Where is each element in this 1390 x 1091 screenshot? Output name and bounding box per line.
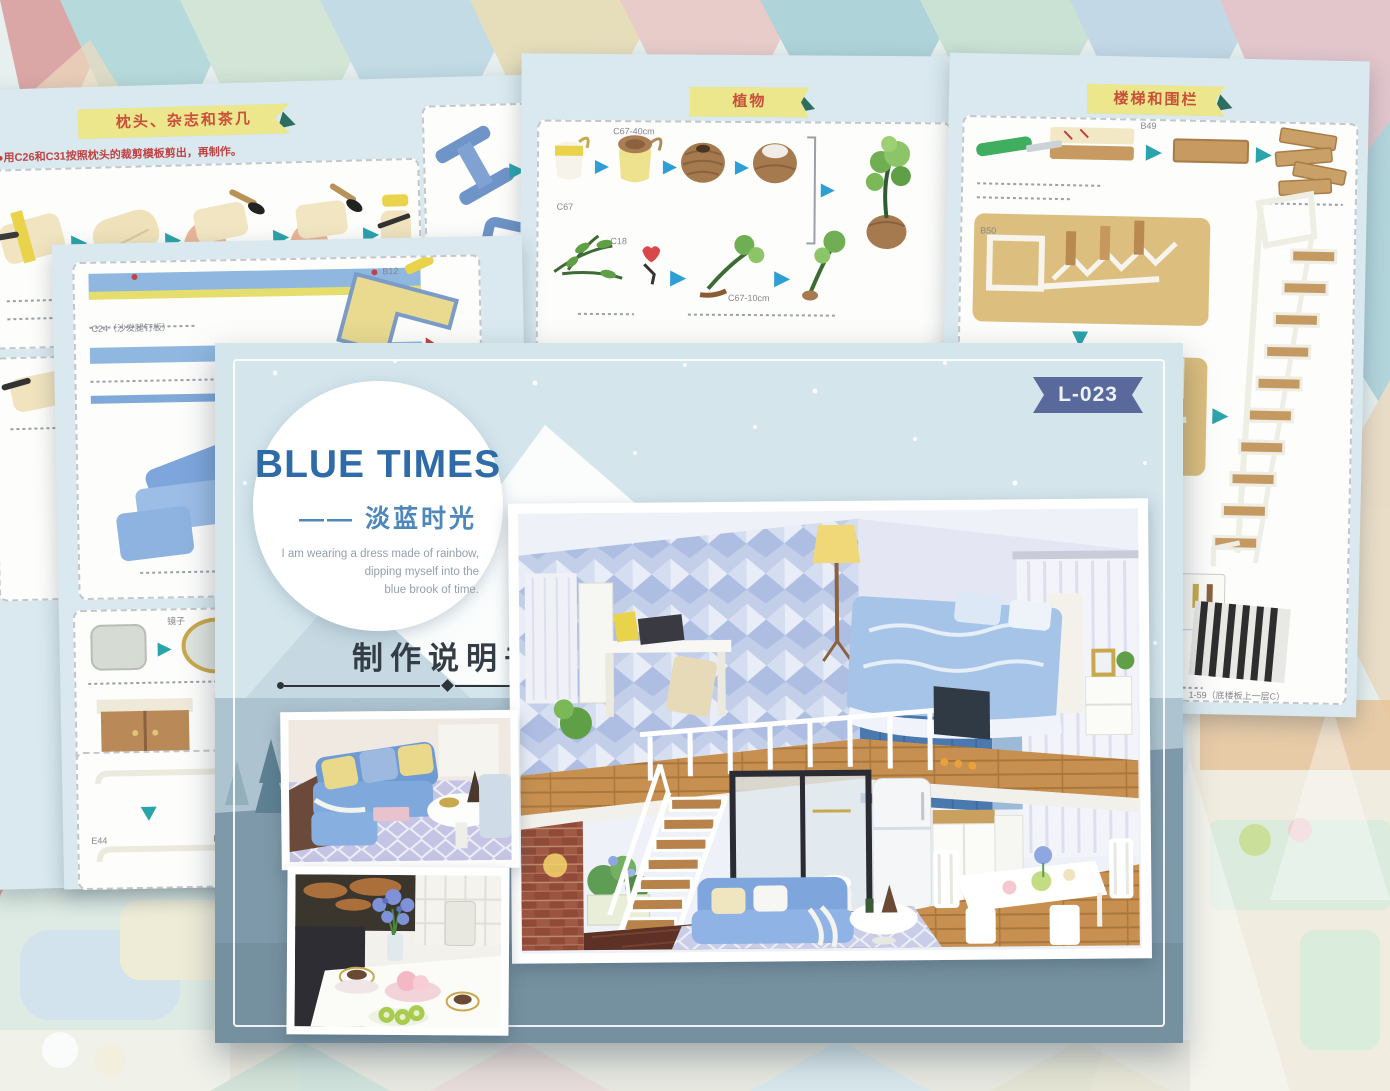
striped-rug: [1189, 601, 1291, 683]
blue-frame-piece: [433, 124, 516, 208]
stair-frame-box-1: [972, 213, 1210, 326]
living-sofa: [691, 877, 854, 948]
arrow-icon: [735, 161, 749, 175]
assembled-staircase: [1213, 192, 1337, 568]
arrow-icon: [1146, 145, 1162, 161]
label-c67-40: C67-40cm: [613, 126, 655, 136]
branch-step-2: [700, 235, 764, 296]
photo-canvas: 枕头、杂志和茶几 ●用C26和C31按照枕头的裁剪模板剪出，再制作。: [0, 0, 1390, 1091]
stairs-banner-label: 楼梯和围栏: [1113, 90, 1198, 109]
arrow-icon: [774, 271, 790, 287]
arrow-icon: [141, 807, 157, 821]
inset-photo-kitchen: [286, 866, 509, 1036]
tagline-line-2: dipping myself into the: [269, 564, 479, 582]
plank-pile: [1274, 128, 1347, 197]
cover-page: L-023 BLUE TIMES —— 淡蓝时光 I am wearing a …: [215, 343, 1183, 1043]
tagline-line-3: blue brook of time.: [269, 582, 479, 600]
arrow-icon: [670, 270, 686, 286]
label-b50: B50: [980, 225, 996, 235]
knife-and-wood: [975, 125, 1134, 160]
brick-wall: [521, 821, 584, 951]
title-circle: BLUE TIMES —— 淡蓝时光 I am wearing a dress …: [253, 381, 503, 631]
dollhouse-art: [518, 508, 1142, 953]
arrow-icon: [1212, 408, 1228, 424]
label-c67-10: C67-10cm: [728, 293, 770, 303]
pot-step-2: [618, 135, 661, 182]
arrow-icon: [821, 184, 835, 198]
wood-plank: [1174, 139, 1248, 163]
fridge: [872, 778, 931, 911]
branch-step-3: [802, 230, 845, 300]
caption-lines: [578, 314, 838, 316]
subtitle-dash: ——: [299, 505, 355, 533]
label-b12: B12: [382, 266, 398, 276]
heart-clip: [642, 246, 660, 262]
inset-photo-sofa: [280, 710, 520, 870]
plants-banner: 植物: [689, 87, 809, 118]
model-badge-label: L-023: [1058, 383, 1118, 406]
label-b49: B49: [1140, 121, 1156, 131]
product-title: BLUE TIMES: [253, 443, 503, 487]
tagline-line-1: I am wearing a dress made of rainbow,: [269, 546, 479, 564]
product-subtitle: —— 淡蓝时光: [253, 499, 477, 535]
main-dollhouse-photo: [508, 498, 1152, 964]
inset-sofa-art: [288, 718, 511, 862]
label-c67: C67: [557, 202, 574, 212]
plants-banner-label: 植物: [732, 93, 766, 110]
model-badge: L-023: [1033, 377, 1143, 413]
divider-dot: [277, 682, 284, 689]
label-c18: C18: [610, 236, 627, 246]
pot-step-3: [681, 143, 725, 183]
pillow-note: ●用C26和C31按照枕头的裁剪模板剪出，再制作。: [0, 143, 242, 166]
divider-diamond: [441, 679, 454, 692]
pillow-banner: 枕头、杂志和茶几: [78, 103, 291, 139]
arrow-icon: [158, 642, 172, 656]
stairs-banner: 楼梯和围栏: [1087, 84, 1226, 117]
subtitle-text: 淡蓝时光: [365, 505, 477, 533]
nightstand: [1085, 648, 1135, 734]
coffee-cup-2: [447, 992, 479, 1010]
tagline: I am wearing a dress made of rainbow, di…: [269, 546, 479, 599]
pot-step-1: [555, 138, 588, 180]
inset-kitchen-art: [294, 874, 501, 1027]
label-c24: C24（沙发腿钉板）: [91, 320, 171, 335]
label-e44-a: E44: [91, 836, 107, 846]
arrow-icon: [1256, 147, 1272, 163]
arrow-icon: [595, 160, 609, 174]
arrow-icon: [663, 160, 677, 174]
finished-plant: [865, 136, 911, 249]
label-mirror: 镜子: [167, 614, 185, 627]
pot-step-4: [753, 143, 797, 183]
divider-line: [284, 685, 440, 687]
pillow-banner-label: 枕头、杂志和茶几: [116, 110, 252, 131]
label-rug-b: 1-59（底楼板上一层C）: [1188, 688, 1285, 703]
